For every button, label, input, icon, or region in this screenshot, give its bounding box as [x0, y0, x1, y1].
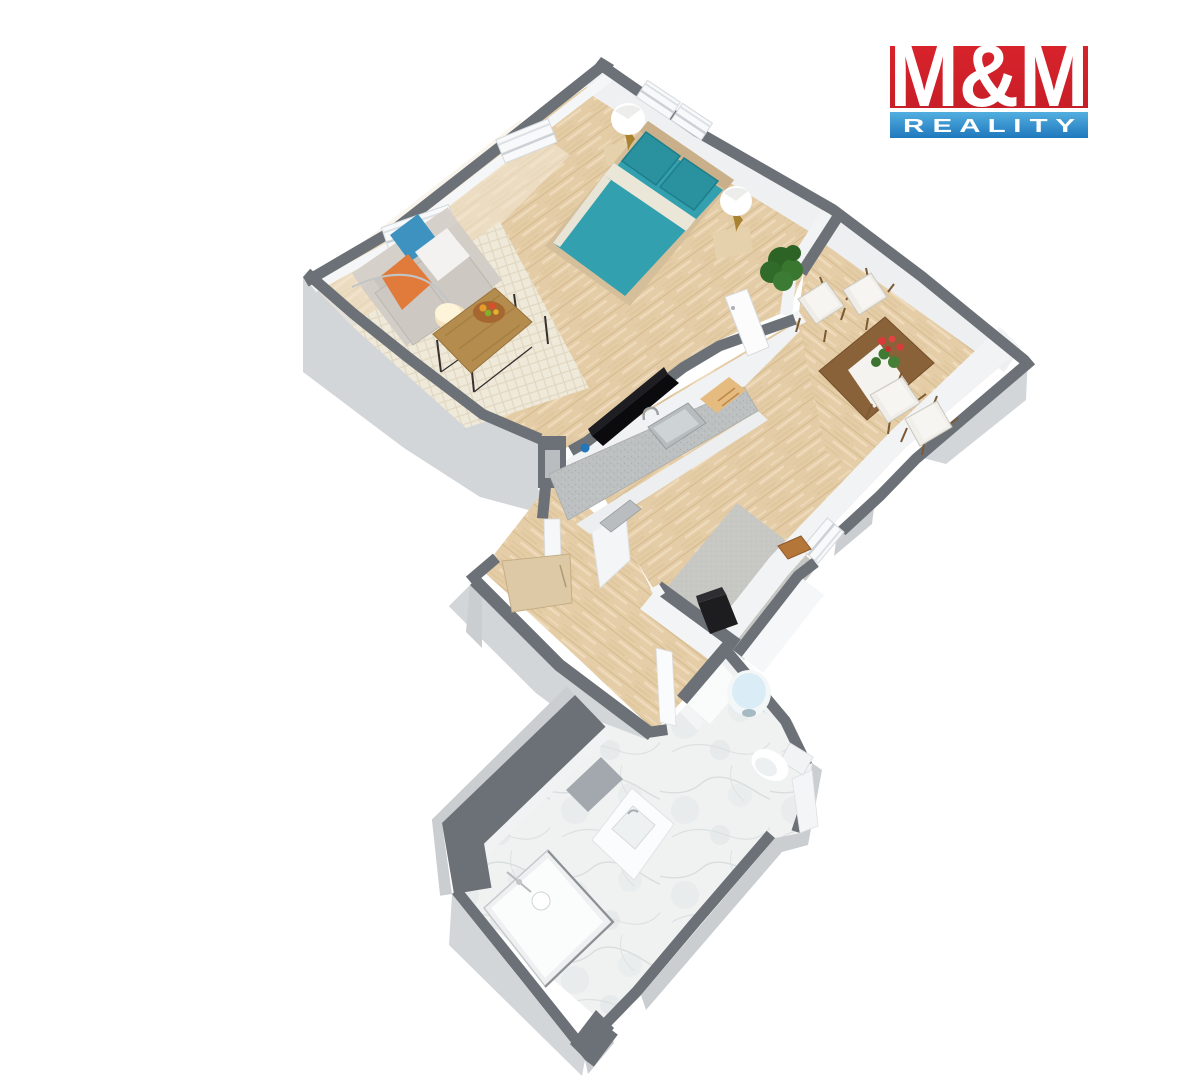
svg-text:M&M: M&M: [890, 26, 1089, 125]
svg-text:R E A L I T Y: R E A L I T Y: [903, 116, 1075, 136]
